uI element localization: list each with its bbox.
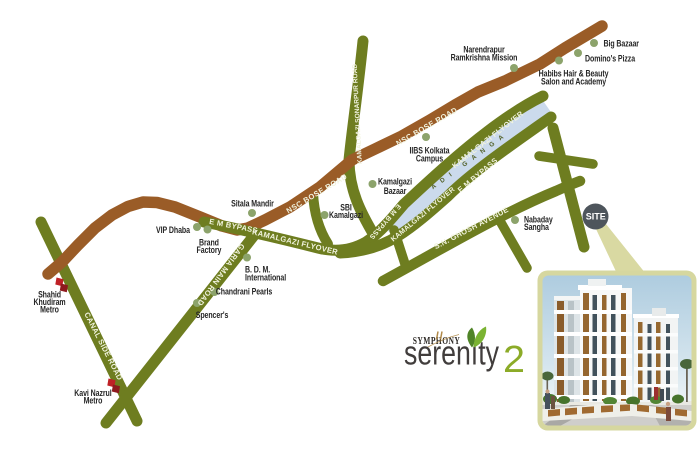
svg-text:Campus: Campus: [416, 154, 444, 164]
svg-text:VIP Dhaba: VIP Dhaba: [156, 225, 190, 235]
svg-text:Sangha: Sangha: [524, 222, 549, 232]
svg-text:Metro: Metro: [84, 396, 103, 406]
svg-text:SITE: SITE: [586, 212, 606, 222]
svg-text:Factory: Factory: [197, 245, 222, 255]
svg-text:Salon and Academy: Salon and Academy: [541, 77, 607, 87]
svg-text:Bazaar: Bazaar: [384, 186, 407, 196]
svg-text:Metro: Metro: [40, 305, 59, 315]
svg-text:Sitala Mandir: Sitala Mandir: [231, 199, 274, 209]
svg-text:Big Bazaar: Big Bazaar: [603, 39, 639, 49]
svg-text:Chandrani Pearls: Chandrani Pearls: [216, 287, 273, 297]
svg-text:International: International: [245, 273, 286, 283]
svg-text:serenıty: serenıty: [404, 335, 499, 373]
svg-text:Domino's Pizza: Domino's Pizza: [585, 54, 636, 64]
svg-text:Spencer's: Spencer's: [196, 310, 229, 320]
svg-text:Kamalgazi: Kamalgazi: [329, 210, 363, 220]
svg-text:2: 2: [503, 339, 525, 381]
svg-text:Ramkrishna Mission: Ramkrishna Mission: [451, 53, 518, 63]
